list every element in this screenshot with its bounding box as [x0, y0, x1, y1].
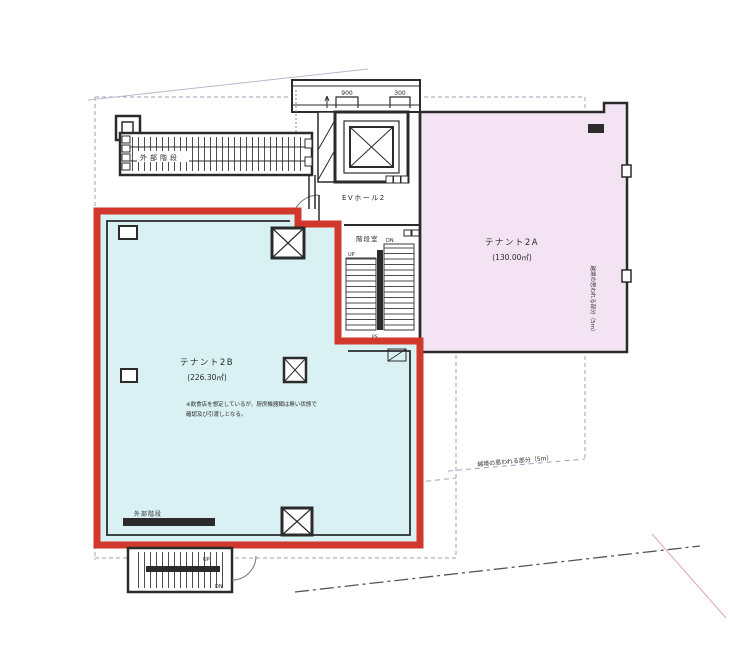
site-line-bottom-right-pink — [652, 534, 726, 618]
floor-plan-canvas: テナント2A (130.00㎡) 越境の思われる部分（5m） 越境の思われる部分… — [0, 0, 732, 670]
tenant-2a-wall-jog-1 — [622, 165, 631, 177]
ev-hall-fixture-1 — [404, 230, 411, 236]
stair-flight-left — [346, 258, 376, 330]
tenant-2a-wall-jog-2 — [622, 270, 631, 282]
staircase-bottom-up-label: UP — [203, 557, 210, 563]
tenant-2b-name: テナント2B — [180, 358, 234, 368]
stair-right-cell-1 — [305, 139, 312, 148]
tenant-2b-note-line2: 確認及び引渡しとなる。 — [186, 410, 246, 418]
ps-label: PS — [372, 334, 378, 340]
stair-flight-right — [384, 244, 414, 330]
stair-left-cell-4 — [122, 163, 130, 170]
stair-room-dn-label: DN — [386, 238, 394, 244]
tenant-2a-column — [588, 124, 604, 133]
stair-left-cell-2 — [122, 145, 130, 152]
tenant-2b-column-1 — [119, 226, 137, 239]
fixture-box-3 — [401, 176, 408, 183]
stair-room-label: 階段室 — [356, 234, 379, 243]
tenant-2b-area: (226.30㎡) — [187, 373, 227, 382]
boundary-note-diagonal: 越境の思われる部分（5m） — [477, 454, 553, 469]
dimension-label-left: 900 — [341, 90, 353, 97]
external-staircase-bottom-label: 外部階段 — [134, 510, 162, 518]
dimension-label-right: 300 — [394, 90, 406, 97]
tenant-2a-area: (130.00㎡) — [492, 253, 532, 262]
tenant-2b-column-2 — [121, 369, 137, 382]
elevator-side-shaft — [318, 112, 335, 182]
staircase-bottom-door-swing — [232, 556, 256, 580]
duct-shaft-middle — [284, 358, 306, 382]
staircase-bottom-handrail — [146, 566, 220, 572]
duct-shaft-bottom — [282, 508, 312, 535]
duct-shaft-top — [272, 228, 304, 258]
external-staircase-top: 外部階段 — [116, 90, 315, 209]
ev-hall-fixture-2 — [412, 230, 419, 236]
elevator-core — [318, 112, 408, 183]
tenant-2b-note-line1: ※飲食店を想定しているが、厨房機器類は無い状態で — [186, 400, 317, 408]
floor-plan-page: テナント2A (130.00㎡) 越境の思われる部分（5m） 越境の思われる部分… — [0, 0, 732, 670]
stair-left-cell-3 — [122, 154, 130, 161]
tenant-2b-low-wall — [123, 518, 215, 526]
stair-left-cell-1 — [122, 136, 130, 143]
external-staircase-top-label: 外部階段 — [140, 153, 180, 162]
column-box-inner — [122, 122, 133, 133]
tenant-2a-room: テナント2A (130.00㎡) 越境の思われる部分（5m） — [420, 103, 631, 352]
site-line-bottom-dashdot — [295, 546, 700, 592]
stair-room-up-label: UP — [348, 252, 355, 258]
fixture-box-1 — [386, 176, 393, 183]
stair-center-wall — [377, 250, 383, 330]
boundary-note-vertical: 越境の思われる部分（5m） — [589, 265, 597, 334]
external-staircase-bottom: UP DN — [128, 548, 256, 592]
fixture-box-2 — [394, 176, 401, 183]
ev-hall-label: EVホール2 — [342, 194, 386, 202]
stair-right-cell-2 — [305, 157, 312, 166]
staircase-bottom-dn-label: DN — [215, 584, 223, 590]
tenant-2a-name: テナント2A — [485, 238, 539, 248]
